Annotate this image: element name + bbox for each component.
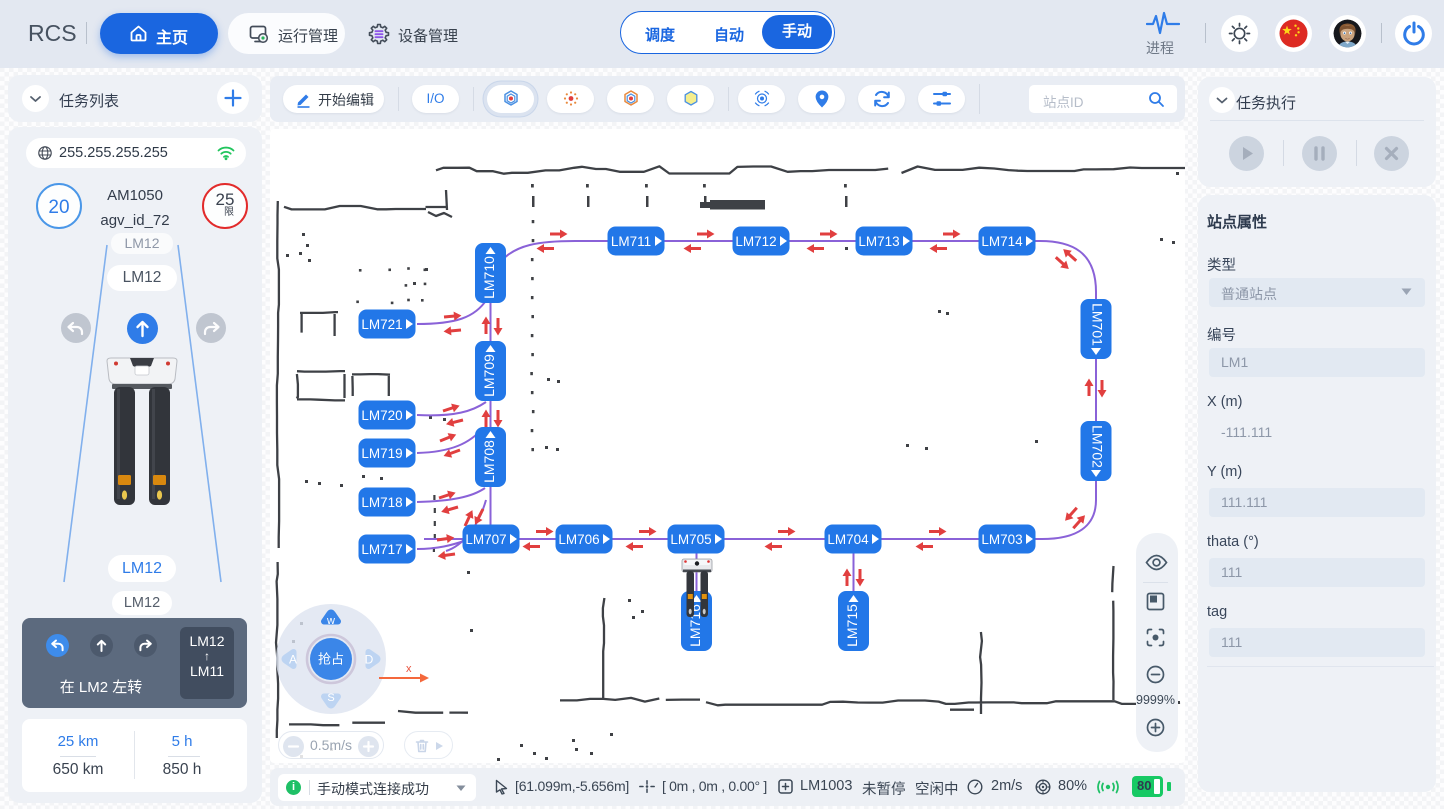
svg-text:LM702: LM702: [1089, 425, 1105, 468]
svg-text:LM721: LM721: [361, 317, 402, 332]
svg-text:LM708: LM708: [481, 440, 497, 483]
svg-text:LM717: LM717: [361, 542, 402, 557]
svg-text:LM705: LM705: [670, 532, 711, 547]
svg-text:LM711: LM711: [611, 234, 651, 249]
svg-text:S: S: [327, 692, 334, 704]
svg-text:LM714: LM714: [981, 234, 1023, 249]
svg-text:LM718: LM718: [361, 495, 402, 510]
svg-text:抢占: 抢占: [318, 652, 344, 667]
svg-text:LM715: LM715: [844, 604, 860, 647]
svg-text:LM707: LM707: [465, 532, 506, 547]
svg-text:LM713: LM713: [858, 234, 899, 249]
svg-text:LM712: LM712: [735, 234, 776, 249]
svg-text:LM706: LM706: [558, 532, 599, 547]
svg-text:LM710: LM710: [481, 256, 497, 299]
svg-text:LM719: LM719: [361, 446, 402, 461]
svg-text:LM703: LM703: [981, 532, 1022, 547]
svg-text:LM709: LM709: [481, 354, 497, 397]
svg-text:A: A: [289, 653, 297, 667]
svg-text:LM720: LM720: [361, 408, 402, 423]
svg-text:w: w: [326, 615, 335, 627]
svg-text:D: D: [365, 653, 374, 667]
svg-text:x: x: [406, 663, 412, 675]
svg-text:LM704: LM704: [827, 532, 869, 547]
svg-text:LM701: LM701: [1089, 303, 1105, 346]
